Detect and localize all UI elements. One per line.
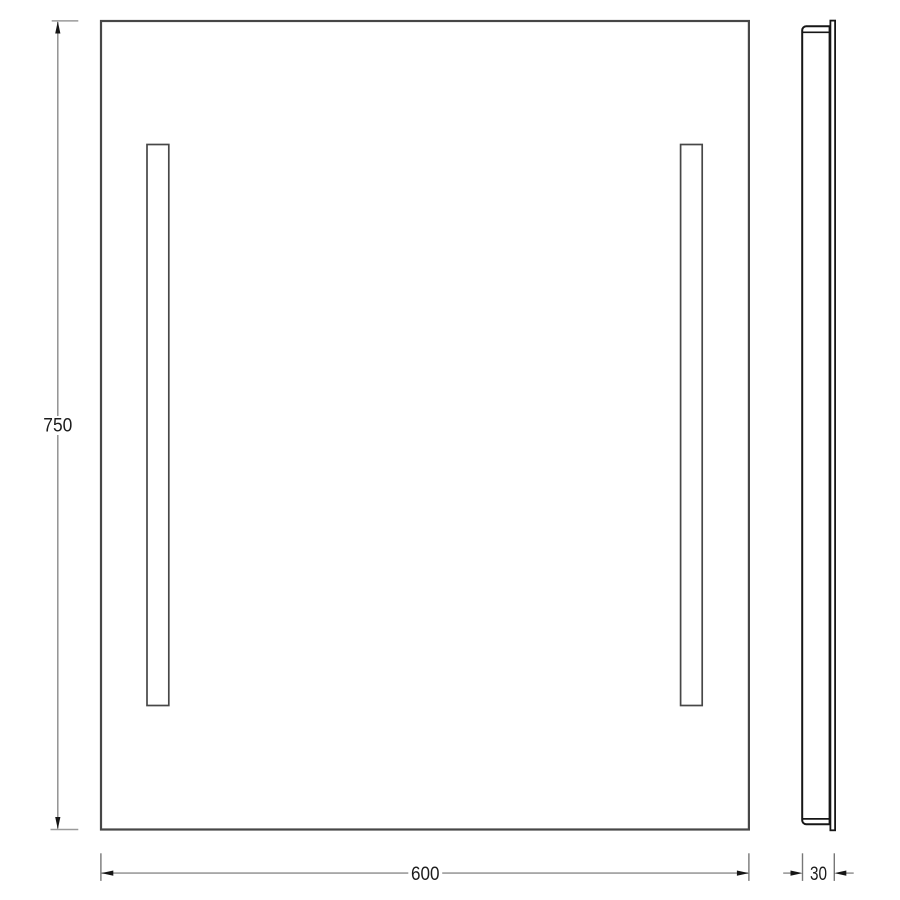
- svg-text:600: 600: [411, 863, 440, 885]
- svg-text:30: 30: [810, 863, 827, 885]
- svg-text:750: 750: [43, 416, 72, 437]
